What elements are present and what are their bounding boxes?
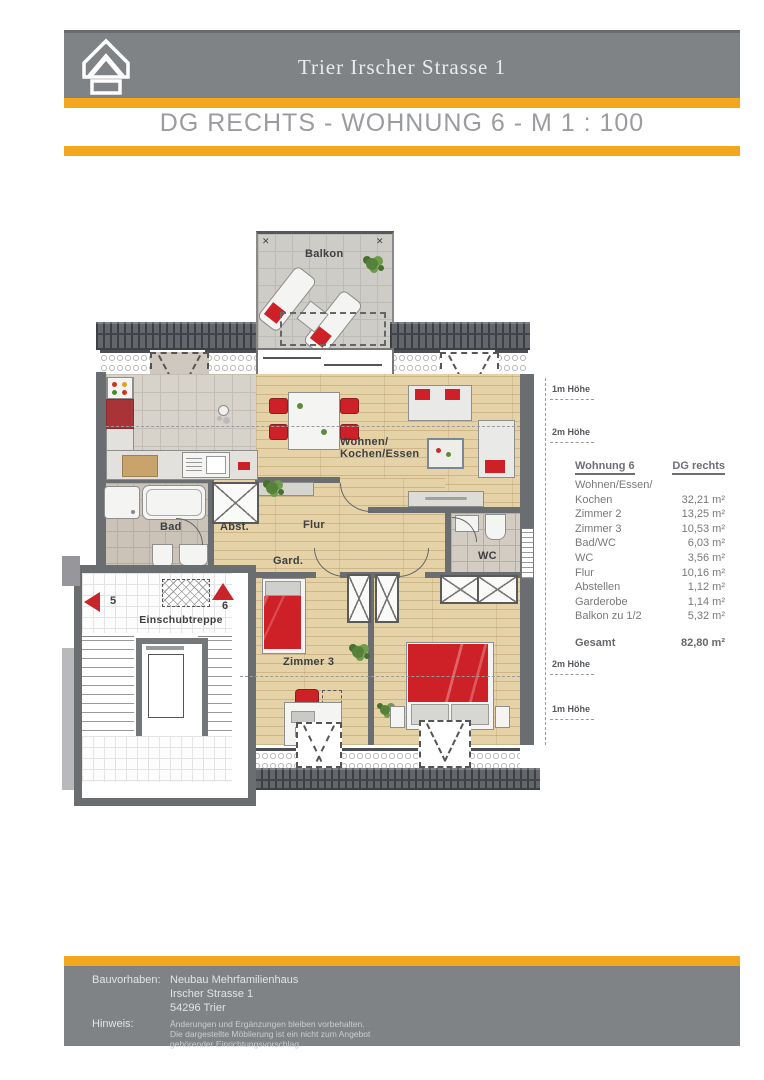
row-value: 10,53 m² [682,522,725,537]
balcony-roof-overhang-line [280,312,386,346]
sink-basin [206,456,226,474]
height-line-2m [106,426,520,427]
person-figure [218,405,229,416]
table-row: Zimmer 213,25 m² [575,507,725,522]
plant-icon [366,258,378,270]
shower-drain [131,510,135,514]
height-tick [550,674,594,675]
dormer-line [426,723,446,762]
door-panel-line [263,357,321,359]
row-value: 5,32 m² [688,609,725,624]
plant-icon [266,482,278,494]
roof-band [96,322,256,350]
stair-number-5: 5 [110,595,116,607]
height-tick [550,399,594,400]
row-value: 1,12 m² [688,580,725,595]
bathtub [142,485,206,520]
height-label-bottom-2m: 2m Höhe [552,659,590,669]
wall [368,507,520,513]
height-label-bottom-1m: 1m Höhe [552,704,590,714]
row-label: Abstellen [575,580,620,595]
wardrobe [477,575,518,604]
row-value: 32,21 m² [682,493,725,508]
bauvorhaben-line: Irscher Strasse 1 [170,988,253,1000]
bauvorhaben-line: 54296 Trier [170,1002,226,1014]
kitchen-accessory [238,462,250,470]
area-table: Wohnung 6 DG rechts Wohnen/Essen/ Kochen… [575,460,725,649]
sofa-cushion [445,389,460,400]
stair-up-arrow-icon [212,583,234,600]
wc-toilet [485,514,506,540]
row-value: 6,03 m² [688,536,725,551]
table-row: Balkon zu 1/25,32 m² [575,609,725,624]
rug [427,438,464,469]
height-tick [550,719,594,720]
elevator-shaft [136,638,208,744]
height-label-top-2m: 2m Höhe [552,427,590,437]
footer-orange-bar [64,956,740,966]
height-label-top-1m: 1m Höhe [552,384,590,394]
stair-left-arrow-icon [84,592,100,612]
room-label-gard: Gard. [273,555,303,567]
wall [445,513,451,573]
row-value: 10,16 m² [682,566,725,581]
sofa-cushion [415,389,430,400]
elevator-car [148,654,184,718]
roof-band [390,322,530,350]
room-label-einschubtreppe: Einschubtreppe [128,614,234,626]
area-table-header-location: DG rechts [672,460,725,475]
bed-blanket [264,596,301,649]
sink-drainer [186,457,202,471]
kitchen-sink [182,452,230,478]
exterior-wall-stub [62,648,74,790]
sheet-subtitle: DG RECHTS - WOHNUNG 6 - M 1 : 100 [64,109,740,138]
row-label: Wohnen/Essen/ [575,478,652,493]
table-setting [297,403,303,409]
bed-blanket [408,644,488,702]
stair-number-6: 6 [222,600,228,612]
table-row: Garderobe1,14 m² [575,595,725,610]
bathtub-inner [146,489,202,516]
elevator-door [146,646,184,650]
dining-table [288,392,340,450]
table-row: Wohnen/Essen/ [575,478,725,493]
hall-shelf [252,482,314,496]
table-row: Flur10,16 m² [575,566,725,581]
stair-landing-bottom [82,736,232,782]
table-row: Abstellen1,12 m² [575,580,725,595]
table-row: WC3,56 m² [575,551,725,566]
orange-divider-top [64,98,740,108]
bauvorhaben-label: Bauvorhaben: [92,974,161,986]
plant-icon [380,705,390,715]
row-label: Zimmer 2 [575,507,621,522]
table-total-row: Gesamt 82,80 m² [575,637,725,649]
dining-chair [340,398,359,414]
chaise-sofa [478,420,515,478]
row-label: Bad/WC [575,536,616,551]
single-bed [262,578,306,654]
room-label-abst: Abst. [220,521,249,533]
exterior-wall-stub [62,556,80,586]
storage-closet [212,482,259,524]
kitchen-red-cabinet [106,399,134,429]
door-panel-line [324,364,382,366]
project-title: Trier Irscher Strasse 1 [64,55,740,80]
row-label: Zimmer 3 [575,522,621,537]
sofa-cushion [485,460,505,473]
room-label-balkon: Balkon [305,248,343,260]
hinweis-line: Änderungen und Ergänzungen bleiben vorbe… [170,1019,365,1029]
dormer-window [419,720,471,768]
row-value: 13,25 m² [682,507,725,522]
room-label-zimmer3: Zimmer 3 [283,656,334,668]
room-label-wohnen-line1: Wohnen/ [340,436,419,448]
rug-flowers [436,448,441,453]
table-row: Bad/WC6,03 m² [575,536,725,551]
annotation-line [545,378,546,745]
double-bed [406,642,494,730]
wardrobe [440,575,481,604]
plant-icon [352,646,364,658]
dormer-window [296,722,342,768]
total-value: 82,80 m² [681,637,725,649]
hinweis-line: gehörender Einrichtungsvorschlag. [170,1039,301,1049]
table-row: Zimmer 310,53 m² [575,522,725,537]
stair-flight-left [82,636,134,731]
plan-sheet: Trier Irscher Strasse 1 DG RECHTS - WOHN… [0,0,764,1080]
bath-sink [179,544,208,566]
orange-divider-bottom [64,146,740,156]
dining-chair [269,398,288,414]
cutting-board [122,455,158,477]
balcony-anchor-icon: ✕ [262,236,270,247]
cooktop [107,377,133,399]
nightstand [390,706,405,728]
row-value: 3,56 m² [688,551,725,566]
radiator [521,528,534,579]
hinweis-label: Hinweis: [92,1018,134,1030]
dormer-line [444,723,464,762]
area-table-header: Wohnung 6 DG rechts [575,460,725,475]
sideboard [408,491,484,507]
table-row: Kochen32,21 m² [575,493,725,508]
row-value: 1,14 m² [688,595,725,610]
row-label: Kochen [575,493,612,508]
loft-ladder-hatch [162,579,210,607]
hinweis-line: Die dargestellte Möblierung ist ein nich… [170,1029,370,1039]
row-label: Flur [575,566,594,581]
room-label-flur: Flur [303,519,325,531]
bauvorhaben-line: Neubau Mehrfamilienhaus [170,974,298,986]
roof-band [240,768,540,790]
row-label: WC [575,551,593,566]
total-label: Gesamt [575,637,615,649]
room-label-wc: WC [478,550,497,562]
sideboard-item [425,497,467,500]
nightstand [495,706,510,728]
wardrobe [347,574,371,623]
row-label: Balkon zu 1/2 [575,609,642,624]
shower [104,486,140,519]
room-label-wohnen-line2: Kochen/Essen [340,448,419,460]
dormer-line [316,725,335,762]
room-label-wohnen: Wohnen/ Kochen/Essen [340,436,419,460]
row-label: Garderobe [575,595,628,610]
bed-pillow [265,581,301,596]
cooktop-burners [112,382,117,387]
sofa [408,385,472,421]
height-line-2m [240,676,520,677]
height-tick [550,442,594,443]
header-band: Trier Irscher Strasse 1 [64,30,740,101]
wardrobe [375,574,399,623]
balcony-anchor-icon: ✕ [376,236,384,247]
area-table-header-apartment: Wohnung 6 [575,460,635,475]
footer-band: Bauvorhaben: Neubau Mehrfamilienhaus Irs… [64,966,740,1046]
